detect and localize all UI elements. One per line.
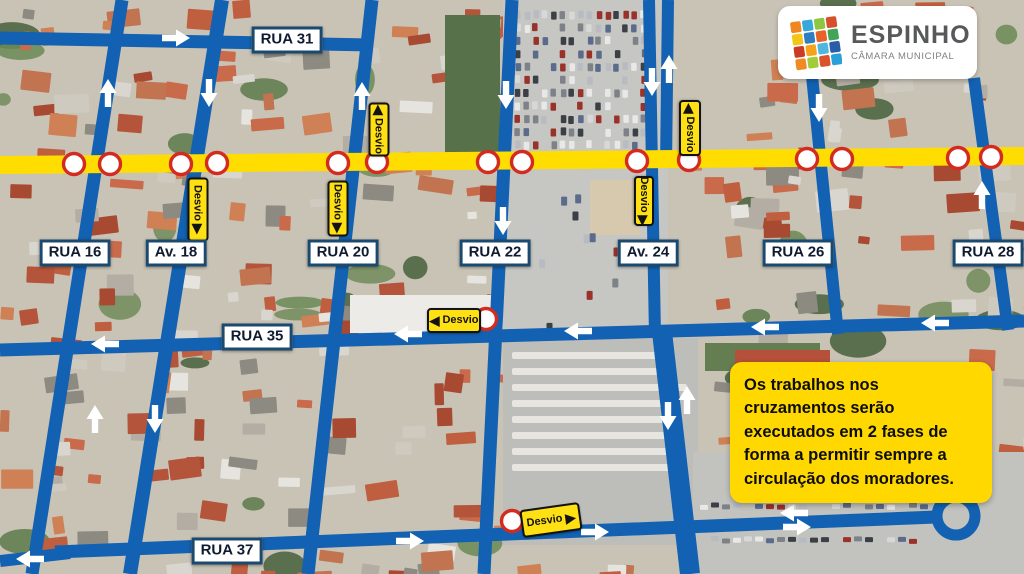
desvio-arrow-icon: ▶ xyxy=(332,223,345,233)
desvio-sign-label: Desvio xyxy=(442,314,478,326)
street-label-rua-37: RUA 37 xyxy=(192,538,263,565)
desvio-sign: Desvio▶ xyxy=(634,176,654,226)
street-label-rua-26: RUA 26 xyxy=(763,240,834,267)
desvio-arrow-icon: ▶ xyxy=(638,216,651,226)
street-label-rua-28: RUA 28 xyxy=(953,240,1024,267)
desvio-arrow-icon: ◀ xyxy=(429,314,439,327)
street-label-rua-31: RUA 31 xyxy=(252,27,323,54)
street-label-av-18: Av. 18 xyxy=(146,240,207,267)
street-label-rua-35: RUA 35 xyxy=(222,324,293,351)
street-label-av-24: Av. 24 xyxy=(618,240,679,267)
logo-text: ESPINHO CÂMARA MUNICIPAL xyxy=(851,23,971,62)
desvio-arrow-icon: ▶ xyxy=(192,224,205,234)
desvio-sign: ◀Desvio xyxy=(427,308,481,333)
desvio-arrow-icon: ◀ xyxy=(373,104,386,114)
desvio-sign: ◀Desvio xyxy=(679,100,701,156)
desvio-sign: Desvio▶ xyxy=(519,502,582,538)
street-label-rua-22: RUA 22 xyxy=(460,240,531,267)
desvio-sign-label: Desvio xyxy=(684,116,696,152)
desvio-arrow-icon: ◀ xyxy=(684,103,697,113)
desvio-sign: ◀Desvio xyxy=(369,102,390,156)
desvio-sign-label: Desvio xyxy=(526,512,563,529)
espinho-roadworks-map: ◀Desvio◀DesvioDesvio▶Desvio▶Desvio▶◀Desv… xyxy=(0,0,1024,574)
espinho-mosaic-icon xyxy=(790,14,842,72)
logo-subtitle: CÂMARA MUNICIPAL xyxy=(851,51,971,62)
street-label-rua-20: RUA 20 xyxy=(308,240,379,267)
desvio-sign-label: Desvio xyxy=(192,184,204,220)
desvio-arrow-icon: ▶ xyxy=(564,510,576,524)
desvio-sign: Desvio▶ xyxy=(328,180,349,236)
espinho-logo: ESPINHO CÂMARA MUNICIPAL xyxy=(778,6,977,79)
desvio-sign-label: Desvio xyxy=(373,117,385,153)
construction-note: Os trabalhos nos cruzamentos serão execu… xyxy=(730,362,992,503)
desvio-sign-label: Desvio xyxy=(332,183,344,219)
street-label-rua-16: RUA 16 xyxy=(40,240,111,267)
desvio-sign: Desvio▶ xyxy=(188,177,209,241)
logo-title: ESPINHO xyxy=(851,23,971,48)
desvio-sign-label: Desvio xyxy=(638,176,650,212)
